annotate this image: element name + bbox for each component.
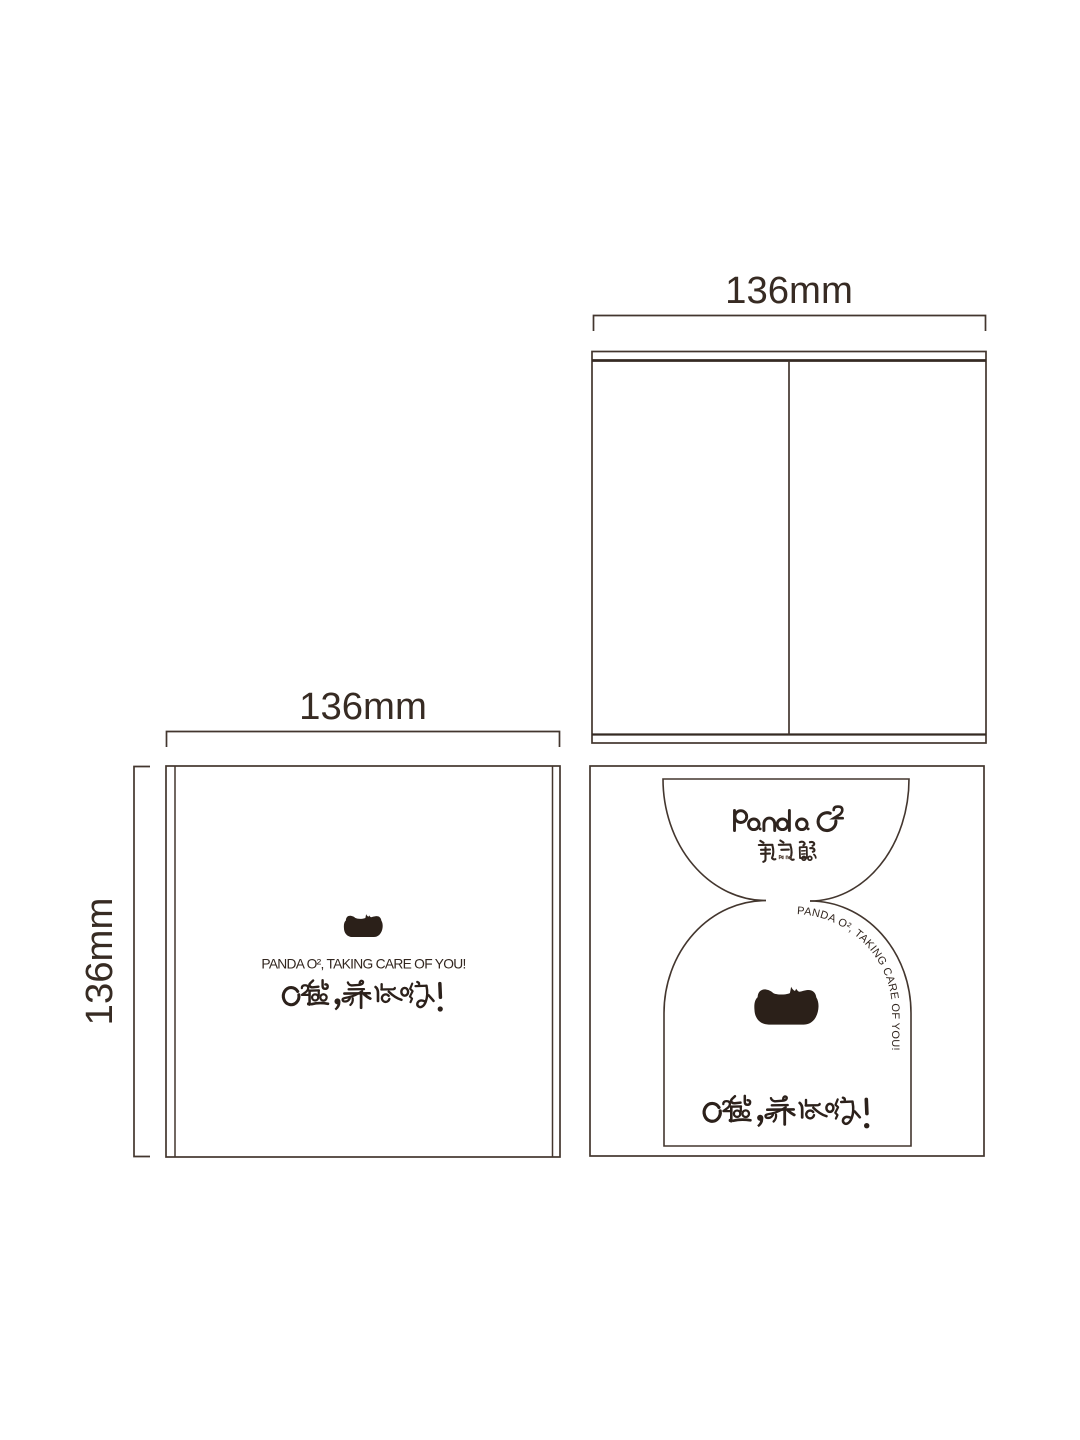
svg-text:136mm: 136mm	[78, 898, 121, 1026]
svg-text:PANDA O², TAKING CARE OF YOU!: PANDA O², TAKING CARE OF YOU!	[261, 957, 465, 972]
svg-text:136mm: 136mm	[299, 685, 427, 728]
svg-text:PANDA O², TAKING CARE OF YOU!: PANDA O², TAKING CARE OF YOU!	[797, 905, 901, 1051]
svg-text:136mm: 136mm	[725, 269, 853, 312]
